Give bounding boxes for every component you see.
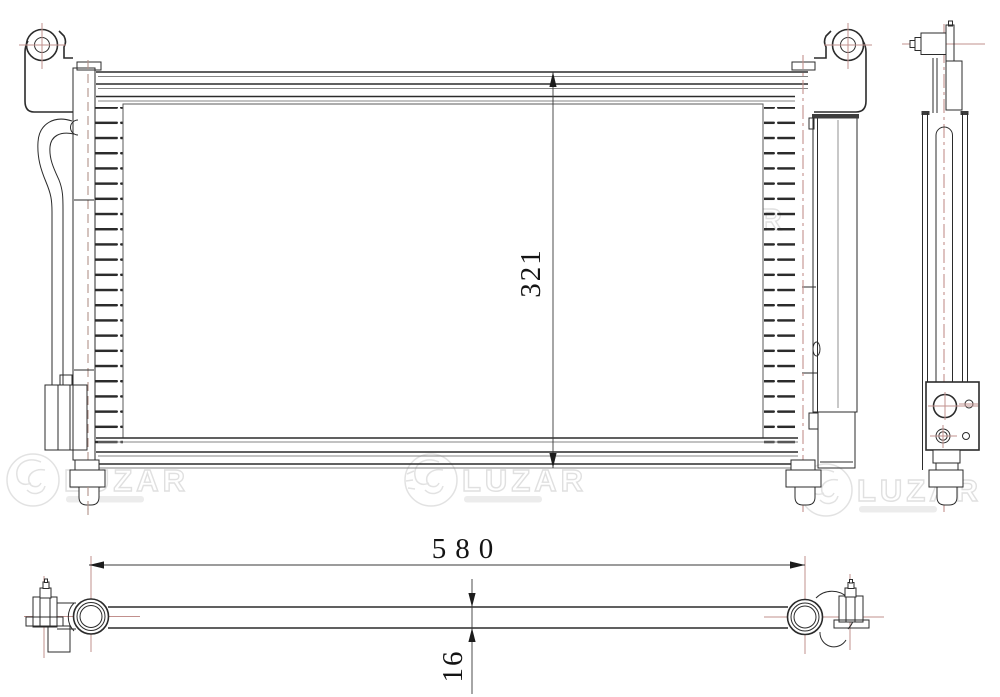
core-tubes-area — [123, 104, 763, 438]
drier-top-cap — [812, 114, 859, 119]
valve-stem — [40, 588, 51, 598]
bottom-view: 580 16 — [24, 533, 884, 694]
valve-stem — [845, 588, 856, 597]
side-view — [902, 21, 985, 512]
core-fins-right — [764, 107, 795, 455]
pipe-eyelet-right — [764, 556, 884, 654]
dimension-core-thickness: 16 — [437, 579, 476, 694]
service-valve-right — [834, 580, 869, 629]
dimension-arrow-down — [468, 593, 475, 607]
inlet-pipe — [38, 119, 78, 385]
connection-block — [926, 382, 979, 450]
core-bottom-side-plate — [96, 438, 798, 468]
valve-leg — [48, 626, 70, 652]
sight-glass — [813, 342, 820, 356]
clamp-hook — [820, 632, 846, 647]
receiver-drier — [802, 114, 859, 468]
drier-tab — [809, 413, 818, 429]
pipe-fitting-block — [45, 375, 87, 450]
core-thickness-label: 16 — [437, 650, 469, 683]
dimension-arrow-up — [549, 72, 556, 87]
drier-lower-section — [818, 412, 855, 468]
mount-bracket-top-left — [19, 23, 73, 112]
service-valve-left — [26, 579, 70, 652]
drawing-canvas: LUZAR LUZAR LUZAR LUZAR — [0, 0, 1000, 697]
core-width-label: 580 — [432, 533, 503, 565]
dimension-arrow-up — [468, 628, 475, 642]
condenser-drawing: LUZAR LUZAR LUZAR LUZAR — [0, 0, 1000, 697]
dimension-core-width: 580 — [89, 533, 805, 569]
core-height-label: 321 — [515, 248, 547, 298]
mount-pin-top — [902, 33, 985, 55]
core-top-side-plate — [96, 72, 808, 101]
dimension-arrow-right — [790, 561, 805, 568]
mount-bracket-top-right — [792, 23, 872, 112]
watermark: LUZAR — [405, 454, 587, 506]
header-top-cap — [77, 62, 101, 70]
core-fins-left — [95, 107, 123, 455]
front-view: 321 — [19, 23, 872, 515]
